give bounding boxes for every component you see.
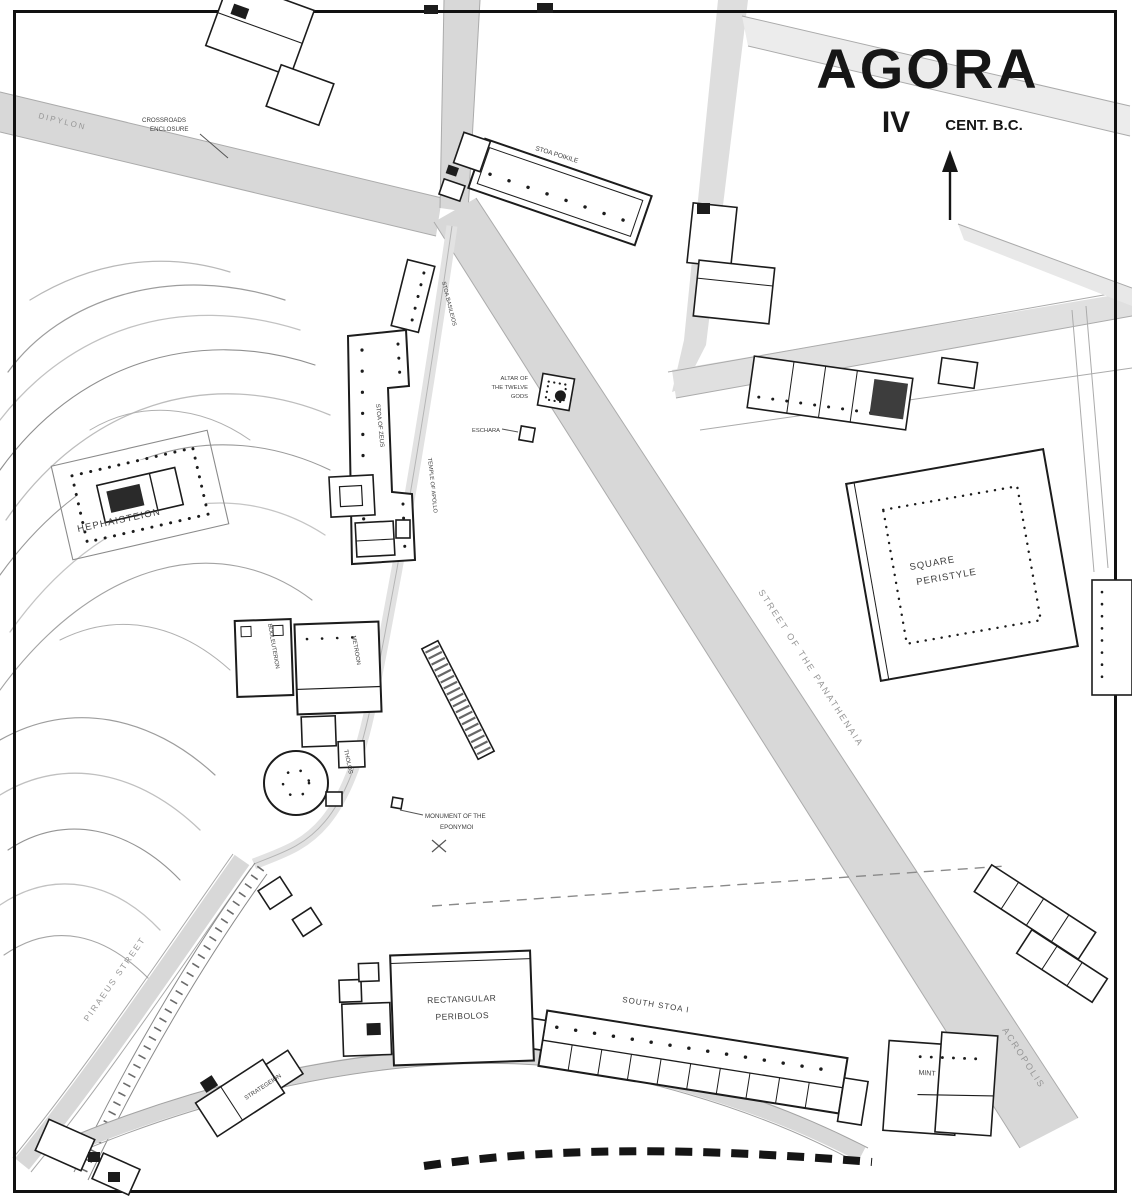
hill-contour — [60, 624, 230, 670]
hill-contour — [0, 718, 215, 775]
label-eschara: ESCHARA — [472, 428, 500, 434]
building-east-small — [938, 358, 977, 389]
building-south-stoa-i — [521, 1008, 871, 1125]
label-eponymoi-2: EPONYMOI — [440, 824, 474, 831]
building-right-edge — [1092, 580, 1132, 695]
building-northeast-1 — [687, 203, 737, 267]
stoa-outline — [538, 1011, 847, 1114]
monument-blob — [697, 203, 710, 214]
building-square-peristyle: SQUARE PERISTYLE — [846, 449, 1078, 681]
building-outline — [938, 358, 977, 389]
road-from-dipylon — [0, 92, 442, 236]
dark-room — [869, 379, 908, 419]
building-outline — [935, 1032, 998, 1136]
building-outline — [294, 622, 381, 715]
monument-blob — [108, 1172, 120, 1182]
peribolos-step-structure — [358, 963, 379, 982]
building-outline — [206, 0, 315, 76]
road-edge — [958, 224, 1132, 288]
building-outline — [266, 65, 334, 125]
label-altar-1: ALTAR OF — [501, 376, 529, 382]
hill-contour — [30, 261, 230, 300]
stoa-outline — [391, 260, 435, 333]
building-rectangular-peribolos: RECTANGULAR PERIBOLOS — [338, 951, 534, 1068]
hill-contour — [90, 410, 250, 440]
label-peribolos-2: PERIBOLOS — [435, 1010, 489, 1022]
street-line — [1086, 306, 1108, 568]
monument-outline — [422, 641, 494, 760]
building-small-temple — [355, 521, 395, 557]
building-small-annex — [396, 520, 410, 538]
hill-contour — [8, 829, 180, 880]
label-apollo-patroos: TEMPLE OF APOLLO — [426, 458, 438, 514]
label-eponymoi-1: MONUMENT OF THE — [425, 813, 486, 820]
building-temple-apollo-patroos — [329, 475, 375, 517]
label-mint: MINT — [918, 1070, 936, 1078]
north-arrow-head — [942, 150, 958, 172]
building-northwest-annex — [266, 65, 334, 125]
agora-site-plan: SQUARE PERISTYLE — [0, 0, 1132, 1200]
north-arrow-icon — [942, 150, 958, 220]
building-outline — [1092, 580, 1132, 695]
building-small-sw — [292, 908, 321, 937]
road-northeast — [672, 0, 748, 392]
label-leader-line — [400, 810, 423, 815]
map-century: IV — [882, 106, 910, 139]
temple-outline — [329, 475, 375, 517]
monument-eponymoi — [422, 641, 494, 760]
map-title: AGORA — [816, 37, 1039, 100]
altar-of-twelve-gods — [537, 373, 574, 410]
monument-blob — [424, 5, 438, 14]
building-small-sw — [258, 877, 292, 910]
boundary-stone — [391, 797, 403, 809]
building-east-strip — [747, 356, 913, 430]
building-outline — [301, 716, 336, 747]
label-altar-2: THE TWELVE — [491, 385, 528, 391]
building-hephaisteion — [51, 430, 228, 560]
building-new-bouleuterion — [235, 619, 294, 697]
peribolos-outline — [390, 951, 534, 1066]
hill-contour — [0, 315, 300, 420]
hill-contour — [8, 285, 285, 372]
building-mint: MINT — [883, 1029, 998, 1138]
building-outline — [687, 203, 737, 267]
label-crossroads-1: CROSSROADS — [142, 117, 186, 124]
peristyle-outline — [846, 449, 1078, 681]
dashed-drain-line — [424, 1151, 872, 1166]
hill-contour — [0, 773, 200, 830]
building-northwest-block — [206, 0, 315, 76]
agora-map-page: SQUARE PERISTYLE — [0, 0, 1132, 1200]
label-south-stoa-i: SOUTH STOA I — [622, 995, 690, 1015]
monument-blob — [366, 1023, 380, 1035]
label-leader-line — [502, 429, 518, 432]
title-block: AGORA IV CENT. B.C. — [816, 37, 1039, 220]
eschara-outline — [519, 426, 535, 442]
road-corner — [958, 224, 1132, 306]
peribolos-step-structure — [339, 980, 362, 1003]
building-old-bouleuterion-metroon — [294, 622, 381, 715]
building-stoa-basileios — [391, 260, 435, 333]
label-altar-3: GODS — [511, 394, 528, 400]
building-tholos — [264, 751, 342, 815]
label-crossroads-2: ENCLOSURE — [150, 126, 189, 133]
building-northeast-2 — [693, 260, 774, 324]
monument-blob — [537, 3, 553, 13]
street-line — [1072, 310, 1094, 572]
monument-blob — [88, 1152, 100, 1162]
hill-contour — [0, 884, 160, 930]
eschara-structure — [519, 426, 535, 442]
tholos-outline — [264, 751, 328, 815]
altar-outline — [537, 373, 574, 410]
building-outline — [235, 619, 294, 697]
building-outline — [693, 260, 774, 324]
tholos-porch — [326, 792, 342, 806]
map-century-suffix: CENT. B.C. — [945, 117, 1023, 134]
